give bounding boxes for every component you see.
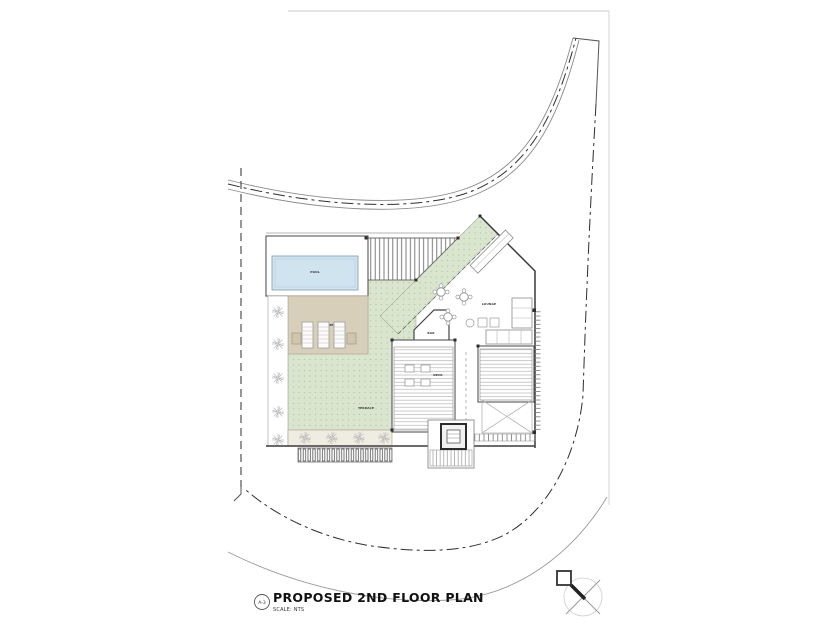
stair-core <box>428 420 474 468</box>
plan-scale: SCALE: NTS <box>273 607 304 613</box>
drawing-sheet: POOL POOL DECK TERRACE <box>0 0 840 630</box>
terrace-label: TERRACE <box>358 406 374 410</box>
deck-side-table-right <box>347 333 356 344</box>
title-block: A-3 PROPOSED 2ND FLOOR PLAN SCALE: NTS <box>255 590 484 613</box>
plan-title: PROPOSED 2ND FLOOR PLAN <box>273 590 484 605</box>
covered-deck-left: DECK <box>392 340 455 432</box>
elevator-cab <box>447 430 460 443</box>
skylight-panel <box>482 400 532 433</box>
planter-strip-west <box>268 296 288 446</box>
floor-plan-drawing: POOL POOL DECK TERRACE <box>0 0 840 630</box>
lounge-chairs <box>302 322 345 348</box>
pool-label: POOL <box>310 270 320 274</box>
north-symbol <box>557 571 602 616</box>
detail-ref-label: A-3 <box>258 600 266 606</box>
building-plan: POOL POOL DECK TERRACE <box>266 215 541 469</box>
bar-room-label: BAR <box>427 331 435 335</box>
roof-deck-right <box>478 346 534 402</box>
stair-treads <box>430 450 472 466</box>
louver-row-south <box>298 448 392 462</box>
lounge-label: LOUNGE <box>482 302 496 306</box>
deck-room-label: DECK <box>433 373 443 377</box>
railing-east <box>534 310 541 432</box>
deck-side-table-left <box>292 333 301 344</box>
